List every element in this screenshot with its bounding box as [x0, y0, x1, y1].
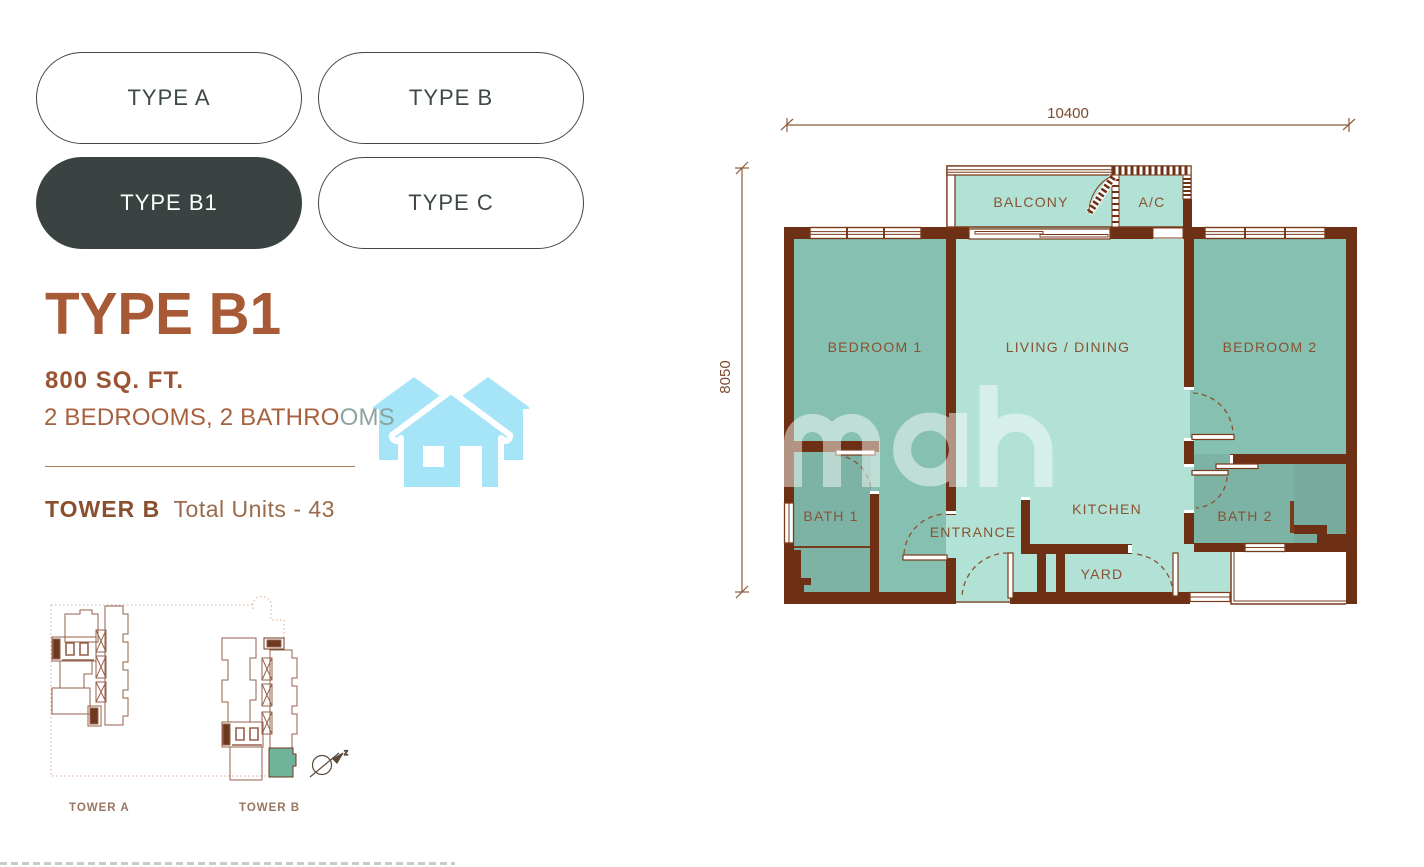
svg-text:z: z: [344, 748, 348, 757]
svg-text:TOWER B: TOWER B: [239, 802, 300, 814]
svg-text:TOWER A: TOWER A: [69, 802, 130, 814]
